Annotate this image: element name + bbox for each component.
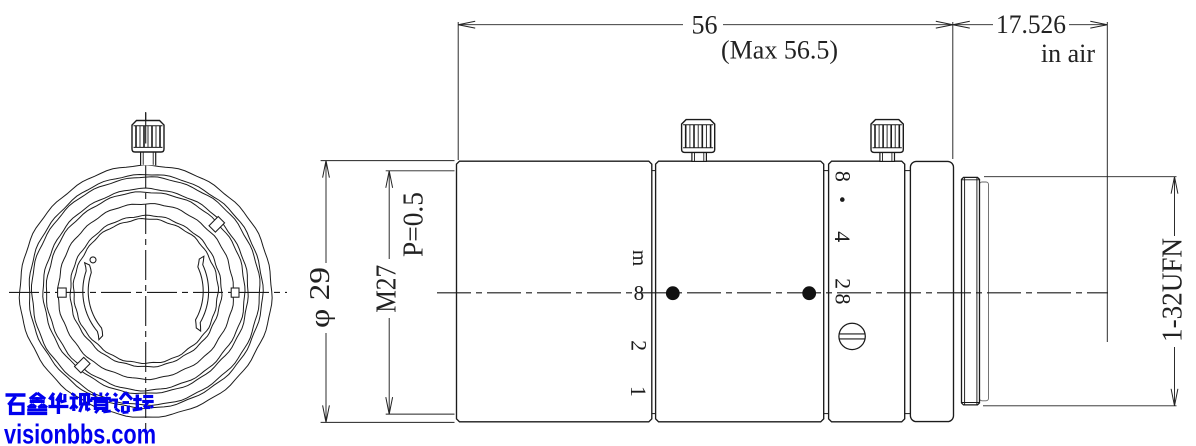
svg-text:2: 2 bbox=[627, 340, 652, 351]
svg-text:P=0.5: P=0.5 bbox=[398, 192, 429, 257]
svg-text:in air: in air bbox=[1041, 39, 1095, 68]
svg-text:8: 8 bbox=[634, 281, 645, 305]
svg-text:17.526: 17.526 bbox=[996, 10, 1066, 39]
svg-text:1: 1 bbox=[626, 386, 651, 397]
svg-text:1-32UFN: 1-32UFN bbox=[1157, 238, 1188, 342]
svg-text:m: m bbox=[628, 250, 652, 266]
svg-text:8: 8 bbox=[830, 171, 855, 182]
svg-text:4: 4 bbox=[830, 231, 855, 242]
svg-text:2: 2 bbox=[831, 278, 856, 289]
svg-text:M27: M27 bbox=[372, 265, 403, 313]
svg-text:(Max 56.5): (Max 56.5) bbox=[721, 36, 838, 65]
svg-text:φ 29: φ 29 bbox=[305, 267, 336, 328]
svg-text:visionbbs.com: visionbbs.com bbox=[4, 419, 156, 446]
svg-text:8: 8 bbox=[830, 294, 855, 305]
svg-text:56: 56 bbox=[692, 10, 718, 39]
